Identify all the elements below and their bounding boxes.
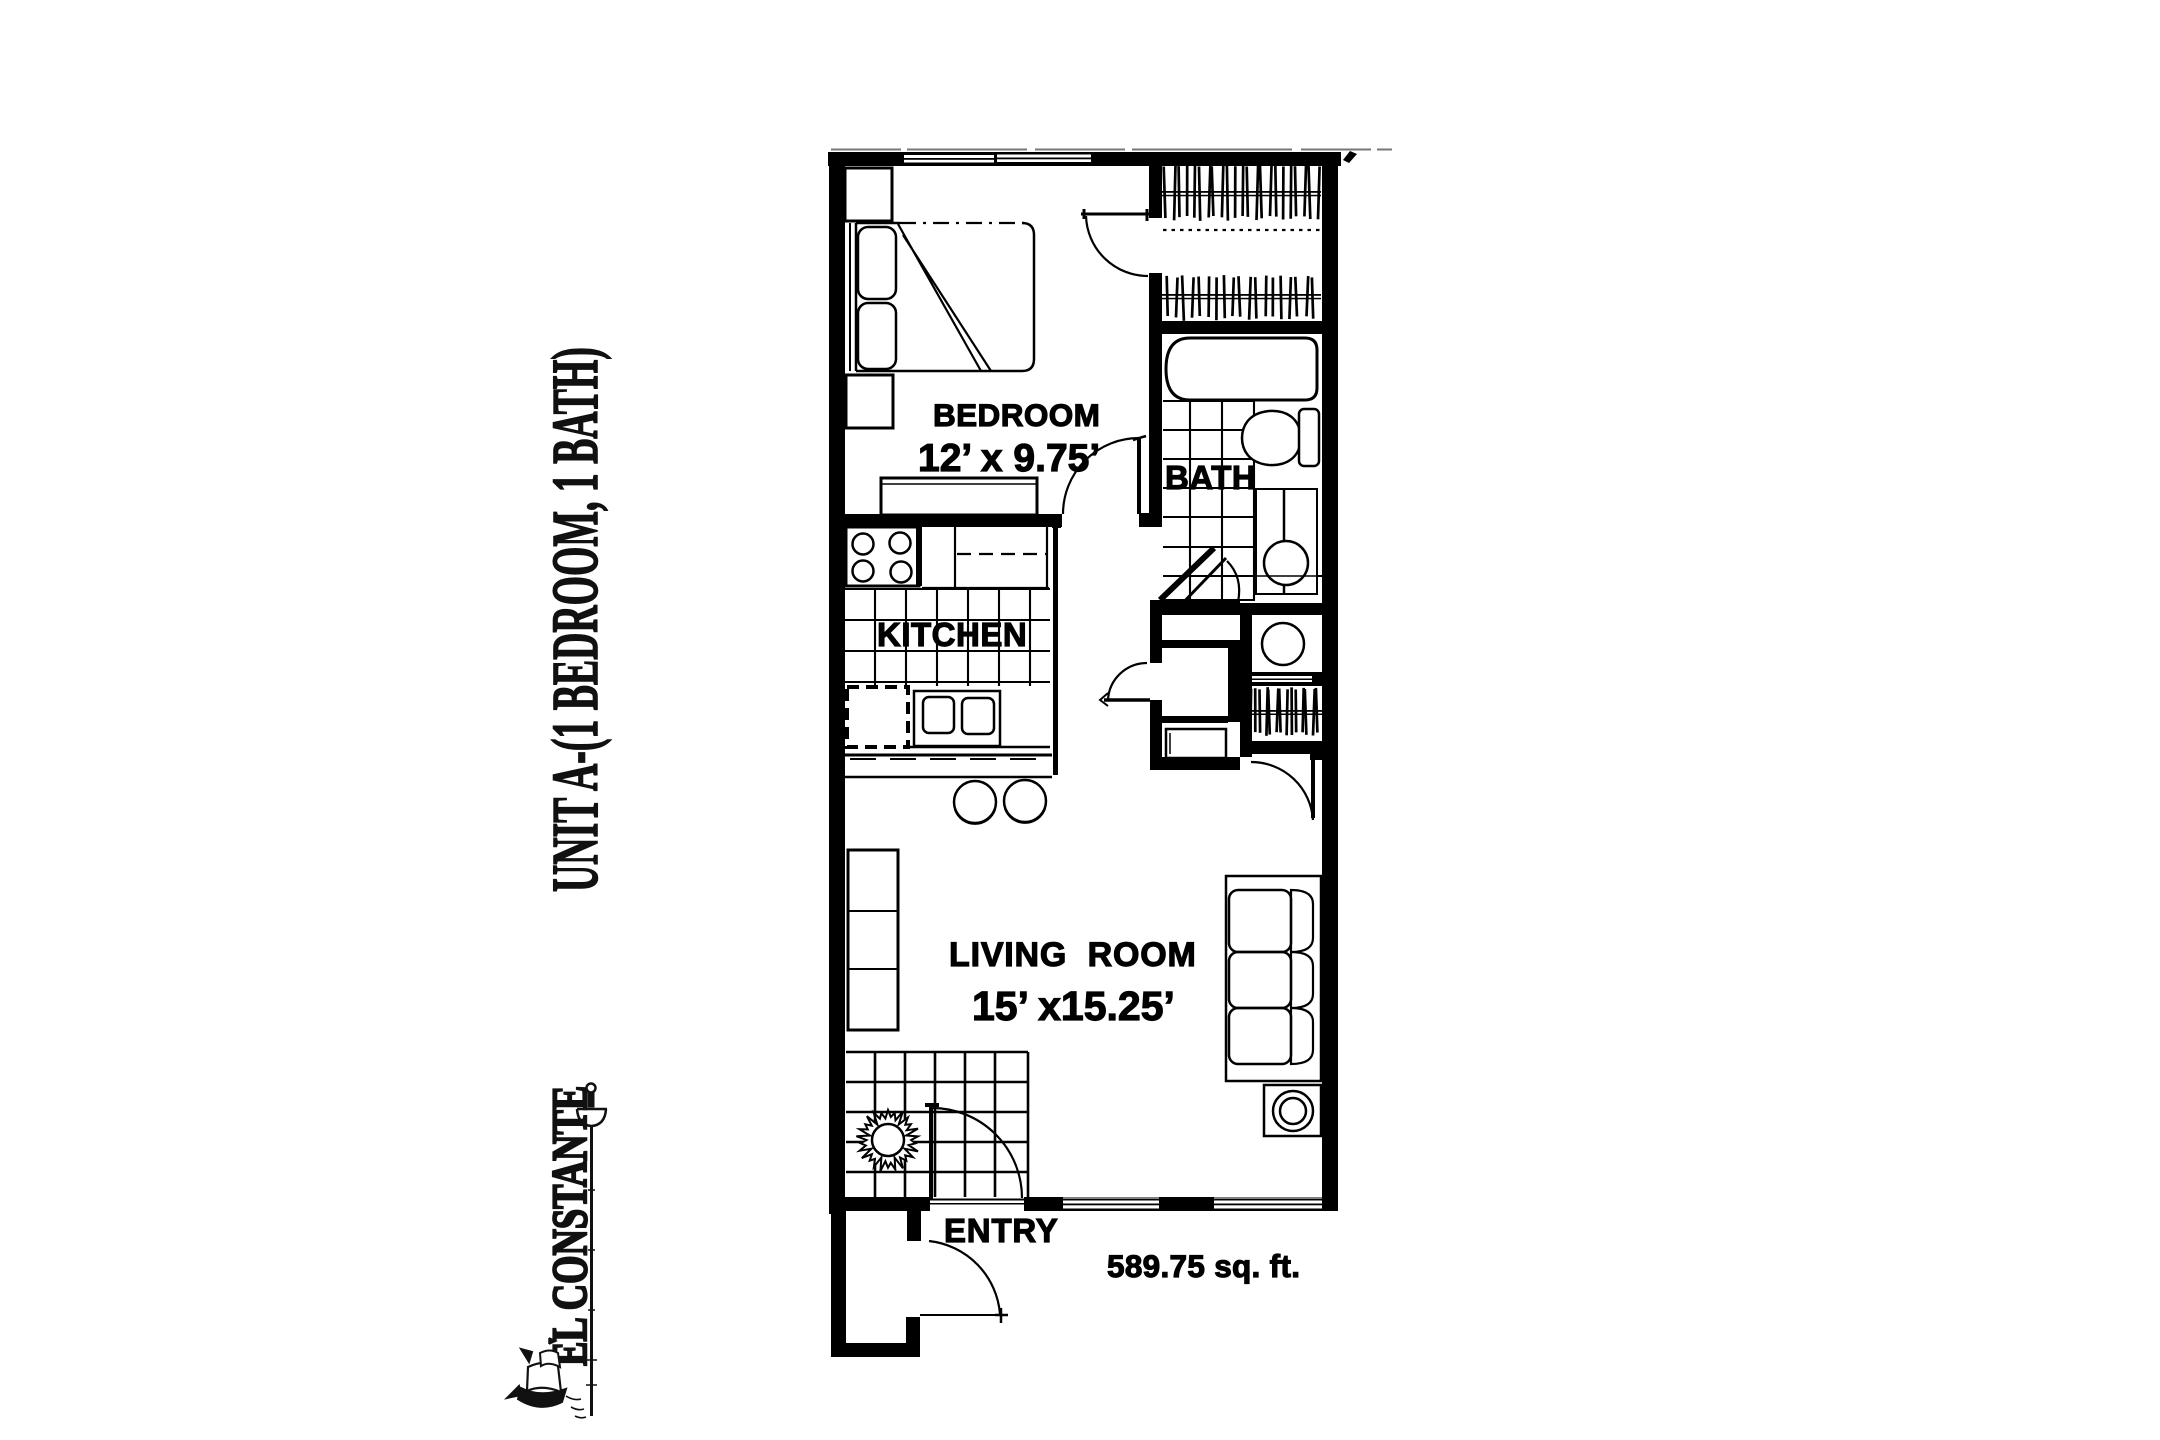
svg-text:589.75 sq. ft.: 589.75 sq. ft.	[1107, 1248, 1300, 1284]
svg-text:LIVING ROOM: LIVING ROOM	[949, 936, 1197, 974]
svg-text:UNIT A-(1 BEDROOM, 1 BATH): UNIT A-(1 BEDROOM, 1 BATH)	[538, 347, 612, 892]
svg-text:ENTRY: ENTRY	[944, 1212, 1059, 1249]
svg-text:15’ x15.25’: 15’ x15.25’	[972, 983, 1175, 1029]
svg-text:EL CONSTANTE: EL CONSTANTE	[543, 1086, 598, 1366]
svg-text:BATH: BATH	[1165, 459, 1256, 496]
svg-text:12’ x 9.75’: 12’ x 9.75’	[918, 437, 1100, 480]
svg-text:BEDROOM: BEDROOM	[933, 397, 1100, 433]
svg-text:KITCHEN: KITCHEN	[877, 616, 1027, 653]
